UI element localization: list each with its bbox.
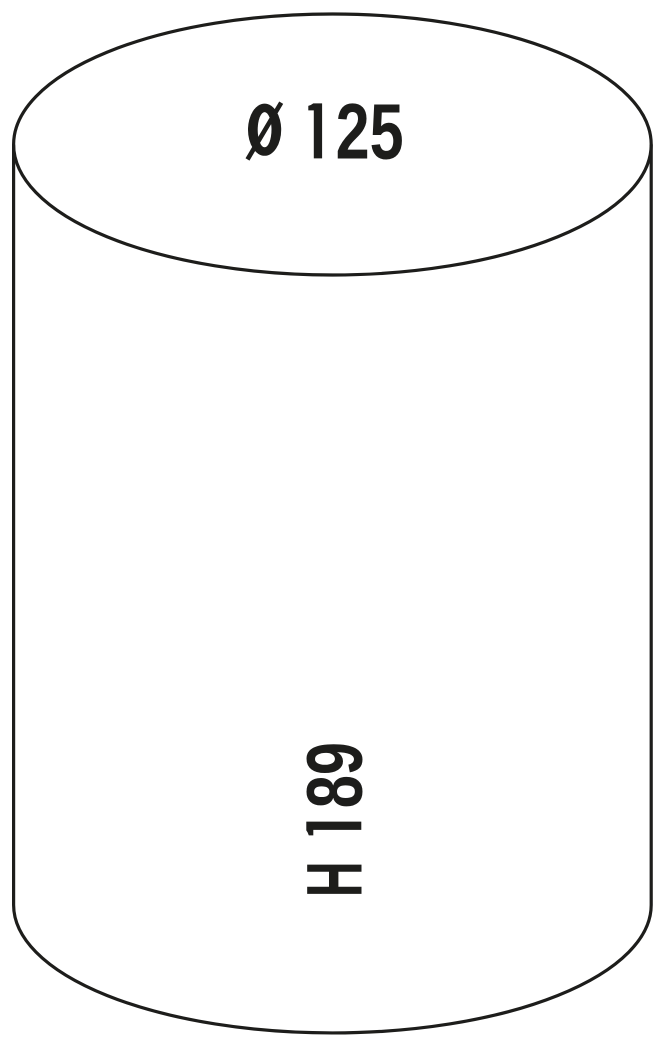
svg-text:89: 89 <box>290 742 378 808</box>
svg-text:H: H <box>290 861 378 897</box>
svg-text:25: 25 <box>336 88 404 176</box>
